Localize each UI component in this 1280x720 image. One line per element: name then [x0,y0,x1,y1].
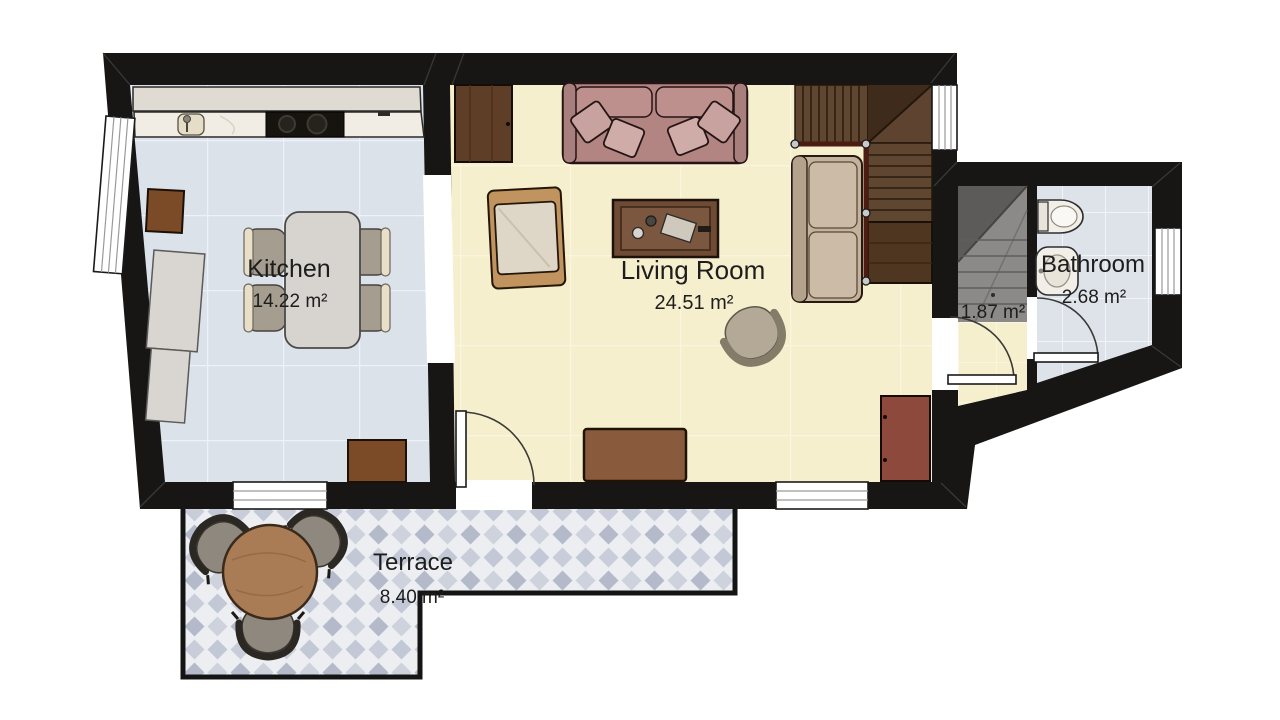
dresser [881,396,930,481]
counter-handle [378,112,390,116]
window [233,482,327,509]
kitchen-side-table [146,189,184,233]
kitchen-area-label: 14.22 m² [253,291,328,312]
window [776,482,868,509]
kitchen-base-cabinet [348,440,406,482]
floor-plan-image: Kitchen 14.22 m² Living Room 24.51 m² Ba… [0,0,1280,720]
toilet [1038,200,1083,233]
stove-cooktop [266,112,344,137]
bathroom-area-label: 2.68 m² [1062,287,1126,308]
window [1155,228,1181,295]
kitchen-passage-opening [423,175,455,363]
door-leaf [456,411,466,487]
remote [698,226,711,232]
living-room-area-label: 24.51 m² [655,292,734,314]
terrace-table [223,525,317,619]
kitchen-sink [178,114,204,135]
armchair [488,187,566,289]
cup [633,228,644,239]
terrace [177,496,735,677]
kitchen-label: Kitchen [247,255,330,283]
tall-cabinet [455,85,512,162]
window [932,85,957,150]
cup [646,216,656,226]
kitchen-wall-cabinets [133,87,421,111]
sectional-sofa [792,156,862,302]
terrace-label: Terrace [373,549,453,576]
floor-plan-page: Kitchen 14.22 m² Living Room 24.51 m² Ba… [0,0,1280,720]
sideboard [584,429,686,481]
sofa [563,83,747,163]
coffee-table [613,200,718,257]
door-leaf [1034,353,1098,362]
terrace-area-label: 8.40 m² [380,587,444,608]
living-room-label: Living Room [621,255,766,285]
stair-hall-area-label: 1.87 m² [961,302,1025,323]
door-leaf [948,375,1016,384]
bathroom-label: Bathroom [1041,251,1145,278]
